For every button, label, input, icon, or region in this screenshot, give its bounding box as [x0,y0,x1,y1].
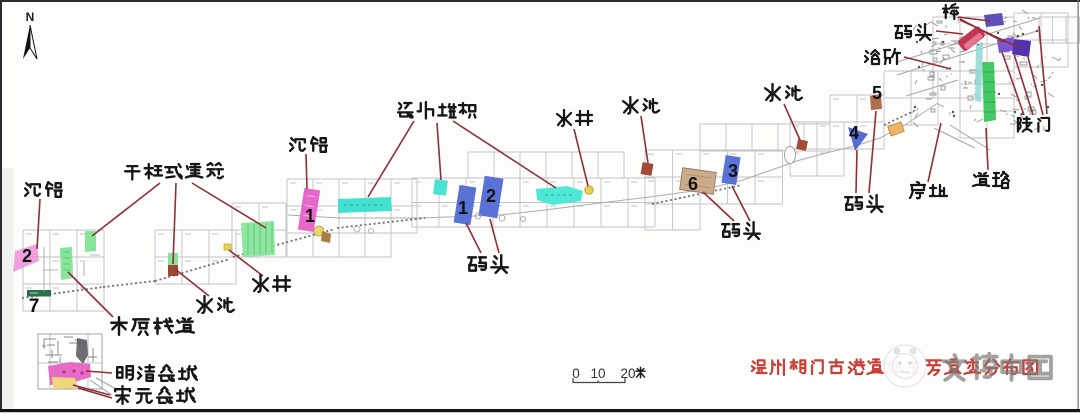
svg-text:5: 5 [872,83,882,103]
svg-text:2: 2 [486,186,496,206]
svg-text:7: 7 [29,296,40,317]
svg-text:4: 4 [849,123,859,143]
svg-text:6: 6 [688,174,698,194]
svg-text:2: 2 [22,246,32,266]
svg-text:N: N [26,10,35,24]
svg-text:20: 20 [620,366,635,381]
svg-text:1: 1 [305,206,315,226]
svg-text:10: 10 [590,366,605,381]
svg-text:1: 1 [458,198,468,218]
svg-text:3: 3 [728,161,738,181]
